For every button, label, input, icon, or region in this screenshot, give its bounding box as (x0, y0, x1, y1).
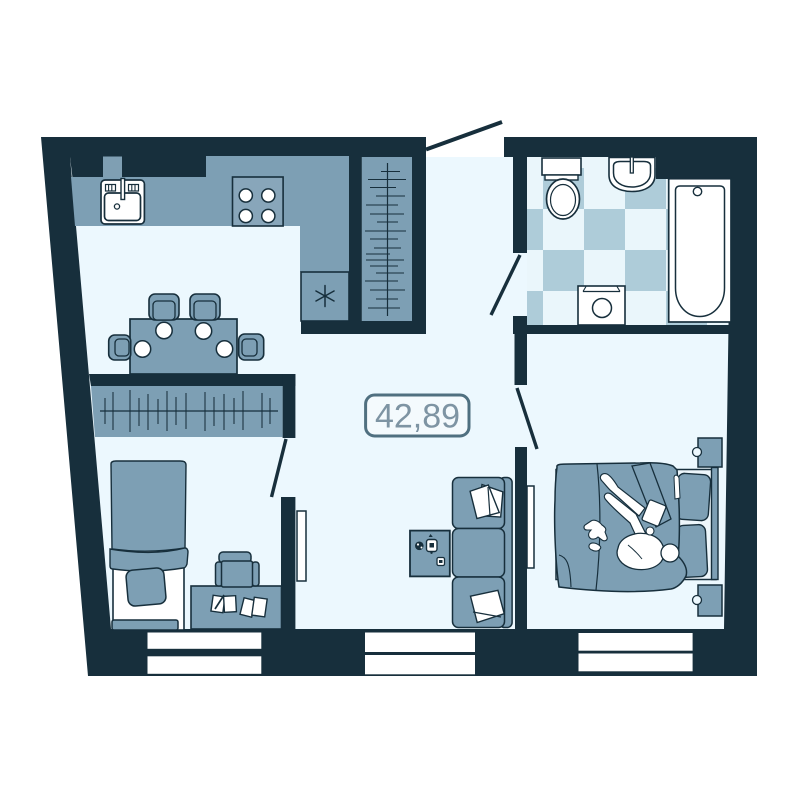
svg-text:42,89: 42,89 (375, 398, 460, 436)
